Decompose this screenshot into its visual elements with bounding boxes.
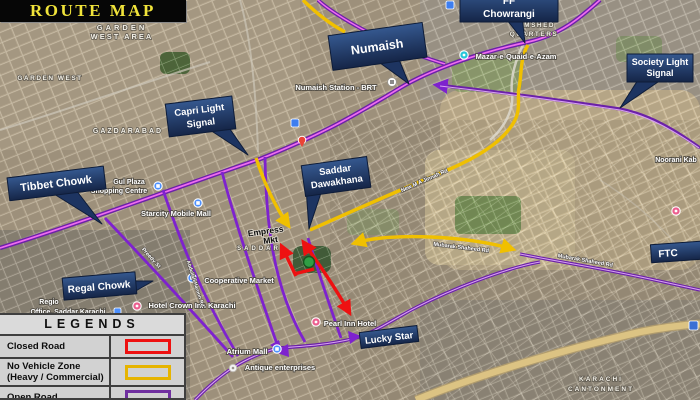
legend-label-open-road: Open Road xyxy=(0,387,111,400)
transit-icon xyxy=(291,119,299,127)
generic-pin-antique xyxy=(229,364,237,372)
poi-label-cooperative: Cooperative Market xyxy=(204,276,274,285)
legend-label-closed-road-text: Closed Road xyxy=(7,341,109,352)
legend-label-open-road-text: Open Road xyxy=(7,392,109,400)
closed-road-swatch xyxy=(125,339,171,354)
legend-panel: LEGENDS Closed Road No Vehicle Zone (Hea… xyxy=(0,313,186,400)
legend-row-open-road: Open Road xyxy=(0,385,184,400)
legend-label-no-vehicle-line1: No Vehicle Zone xyxy=(7,361,109,372)
poi-label-starcity: Starcity Mobile Mall xyxy=(141,209,211,218)
poi-label-crown: Hotel Crown Inn Karachi xyxy=(148,301,235,310)
shopping-pin-atrium xyxy=(273,345,281,353)
poi-label-numaish-station: Numaish Station - BRT xyxy=(295,83,377,92)
legend-row-closed-road: Closed Road xyxy=(0,334,184,357)
poi-label-noorani: Noorani Kab xyxy=(655,157,697,164)
callout-ftc-label: FTC xyxy=(658,248,678,260)
no-vehicle-zone-swatch xyxy=(125,365,171,380)
poi-label-atrium: Atrium Mall xyxy=(227,347,268,356)
legend-swatch-cell-closed xyxy=(111,339,184,354)
hotel-pin-pearl xyxy=(312,318,320,326)
callout-ftc: FTC xyxy=(650,241,700,263)
poi-label-gul-1: Gul Plaza xyxy=(113,179,145,186)
legend-row-no-vehicle-zone: No Vehicle Zone (Heavy / Commercial) xyxy=(0,357,184,385)
poi-label-antique: Antique enterprises xyxy=(245,363,315,372)
legend-swatch-cell-no-vehicle xyxy=(111,365,184,380)
callout-ff-line1: FF xyxy=(503,0,515,7)
area-label-garden-2: WEST AREA xyxy=(91,32,154,41)
area-label-cantt-1: KARACHI xyxy=(579,376,623,383)
poi-label-regio-1: Regio xyxy=(39,299,58,306)
legend-header: LEGENDS xyxy=(0,315,184,334)
open-road-swatch xyxy=(125,390,171,400)
area-label-garden-west: GARDEN WEST xyxy=(17,75,82,82)
shopping-pin-starcity xyxy=(194,199,202,207)
transit-icon-top xyxy=(446,1,454,9)
callout-society-line2: Signal xyxy=(646,68,673,78)
mazar-pin xyxy=(460,51,468,59)
area-label-garden-1: GARDEN xyxy=(97,23,148,32)
route-map-screenshot: GARDEN WEST AREA GARDEN WEST GAZDARABAD … xyxy=(0,0,700,400)
hotel-pin-east xyxy=(672,207,680,215)
poi-label-mazar: Mazar-e-Quaid-e-Azam xyxy=(476,52,557,61)
legend-swatch-cell-open xyxy=(111,390,184,400)
callout-ff-line2: Chowrangi xyxy=(483,9,535,20)
poi-label-empress-2: Mkt xyxy=(263,234,279,246)
route-shield-icon xyxy=(689,321,698,330)
callout-society-line1: Society Light xyxy=(632,57,689,67)
legend-label-no-vehicle-line2: (Heavy / Commercial) xyxy=(7,372,109,383)
area-label-saddar: SADDAR xyxy=(237,246,281,252)
page-title: ROUTE MAP xyxy=(0,0,186,22)
station-pin-glyph xyxy=(390,80,394,84)
area-label-gazdarabad: GAZDARABAD xyxy=(93,128,163,135)
hotel-pin-crown xyxy=(133,302,141,310)
green-spot-marker xyxy=(304,257,315,268)
area-label-cantt-2: CANTONMENT xyxy=(568,386,634,393)
poi-label-pearl: Pearl Inn Hotel xyxy=(324,319,377,328)
shopping-pin-gul-plaza xyxy=(154,182,162,190)
legend-label-closed-road: Closed Road xyxy=(0,336,111,357)
legend-label-no-vehicle-zone: No Vehicle Zone (Heavy / Commercial) xyxy=(0,359,111,385)
